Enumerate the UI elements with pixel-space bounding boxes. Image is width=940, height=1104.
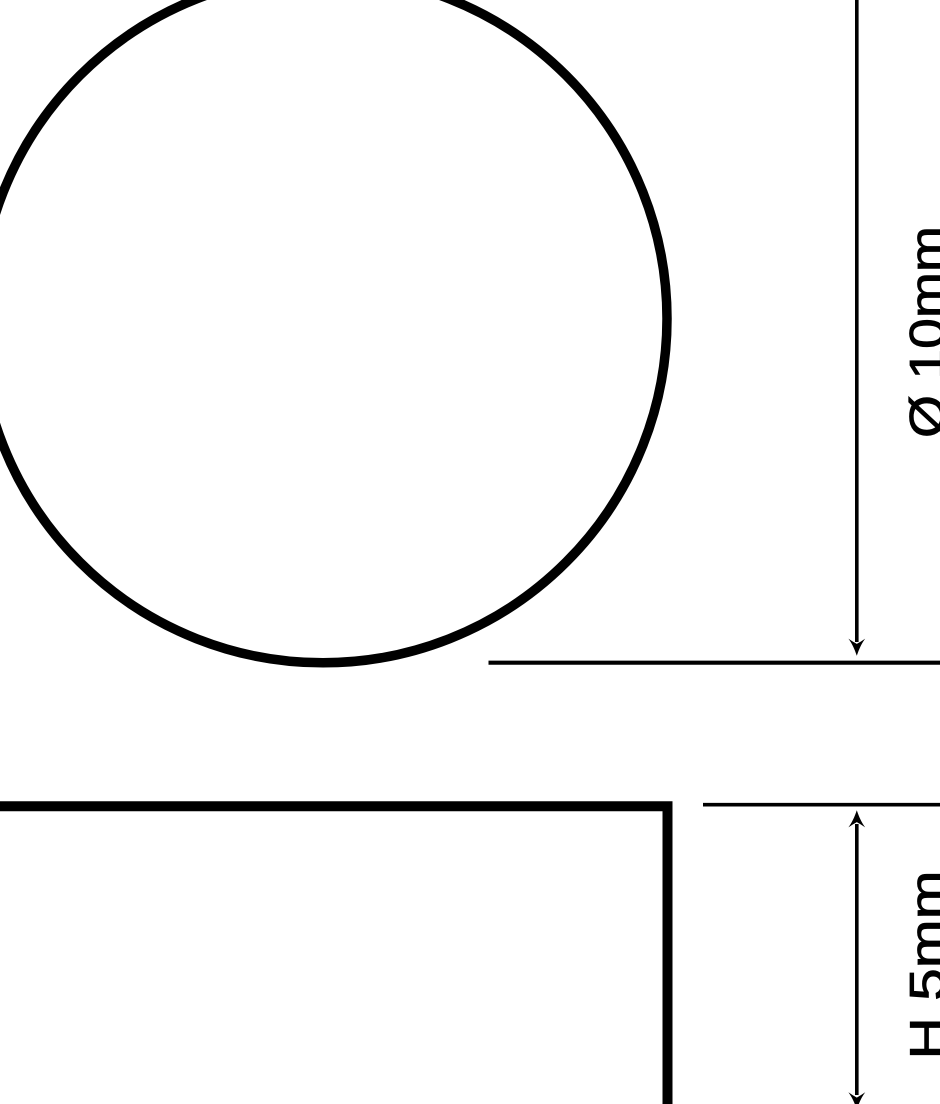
svg-text:Ø 10mm: Ø 10mm xyxy=(900,226,940,438)
svg-text:H 5mm: H 5mm xyxy=(900,871,940,1060)
